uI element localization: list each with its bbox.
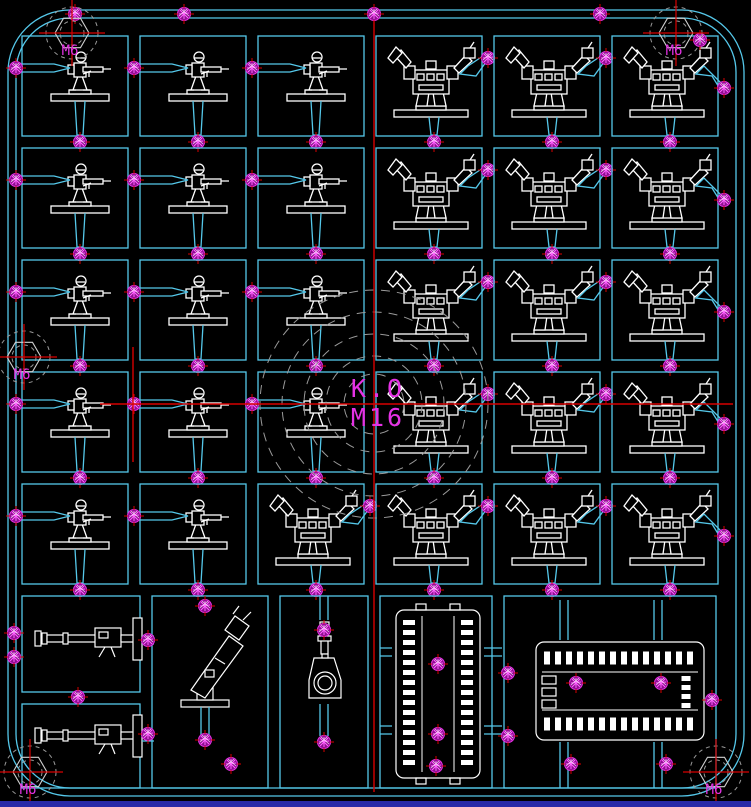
track-v-part bbox=[396, 604, 480, 784]
soldier-figure bbox=[169, 52, 229, 101]
robot-figure bbox=[388, 42, 475, 117]
gate-marker bbox=[360, 496, 380, 516]
sprue-cell-robot bbox=[376, 484, 498, 600]
drop-runner bbox=[75, 213, 85, 247]
drop-runner bbox=[193, 325, 203, 359]
gate-marker bbox=[306, 468, 326, 488]
gate-marker bbox=[542, 356, 562, 376]
gate-marker bbox=[478, 272, 498, 292]
sprue-cell-soldier bbox=[124, 148, 246, 264]
robot-figure bbox=[506, 266, 593, 341]
gate-marker bbox=[6, 282, 26, 302]
soldier-figure bbox=[287, 276, 347, 325]
robot-figure bbox=[624, 490, 711, 565]
gate-marker bbox=[596, 272, 616, 292]
gate-marker bbox=[702, 690, 722, 710]
robot-figure bbox=[388, 266, 475, 341]
soldier-figure bbox=[51, 388, 111, 437]
drop-runner bbox=[193, 549, 203, 583]
gate-marker bbox=[714, 526, 734, 546]
cad-viewport[interactable]: M6M6M6M6M6K.OM16 bbox=[0, 0, 751, 807]
gate-marker bbox=[428, 724, 448, 744]
gate-marker bbox=[188, 356, 208, 376]
gate-marker bbox=[651, 673, 671, 693]
mould-size-text: M16 bbox=[351, 403, 405, 432]
gate-marker bbox=[4, 623, 24, 643]
sprue-cell-soldier bbox=[242, 148, 364, 264]
gate-marker bbox=[124, 282, 144, 302]
gate-marker bbox=[242, 58, 262, 78]
sprue-cell-robot bbox=[376, 36, 498, 152]
sprue-cell-robot bbox=[612, 260, 734, 376]
mould-id-text: K.O bbox=[351, 374, 405, 403]
gate-marker bbox=[6, 394, 26, 414]
drop-runner bbox=[311, 437, 321, 471]
gate-marker bbox=[306, 580, 326, 600]
gate-marker bbox=[498, 663, 518, 683]
soldier-figure bbox=[51, 276, 111, 325]
soldier-figure bbox=[169, 164, 229, 213]
drop-runner bbox=[75, 325, 85, 359]
gate-marker bbox=[70, 356, 90, 376]
track-h-part bbox=[536, 642, 704, 740]
gate-marker bbox=[242, 170, 262, 190]
bolt-hole-label: M6 bbox=[62, 43, 79, 59]
robot-figure bbox=[270, 490, 357, 565]
sprue-cell-robot bbox=[494, 372, 616, 488]
gate-marker bbox=[590, 4, 610, 24]
heavy-gun-part bbox=[35, 715, 142, 757]
gate-marker bbox=[364, 4, 384, 24]
cad-canvas[interactable]: M6M6M6M6M6K.OM16 bbox=[0, 0, 751, 801]
gate-marker bbox=[428, 654, 448, 674]
drop-runner bbox=[311, 101, 321, 135]
sprue-cell-robot bbox=[494, 148, 616, 264]
gate-marker bbox=[596, 384, 616, 404]
gate-marker bbox=[221, 754, 241, 774]
drop-runner bbox=[311, 213, 321, 247]
gate-marker bbox=[174, 4, 194, 24]
soldier-figure bbox=[51, 164, 111, 213]
drop-runner bbox=[75, 101, 85, 135]
gate-marker bbox=[424, 132, 444, 152]
gate-marker bbox=[314, 732, 334, 752]
gate-marker bbox=[424, 468, 444, 488]
gate-marker bbox=[124, 58, 144, 78]
gate-marker bbox=[70, 580, 90, 600]
gate-marker bbox=[596, 48, 616, 68]
sprue-cell-soldier bbox=[242, 372, 364, 488]
sprue-cell-robot bbox=[494, 484, 616, 600]
soldier-figure bbox=[287, 388, 347, 437]
gate-marker bbox=[660, 244, 680, 264]
gate-marker bbox=[424, 244, 444, 264]
sprue-cell-soldier bbox=[242, 260, 364, 376]
gate-marker bbox=[306, 132, 326, 152]
gate-marker bbox=[478, 160, 498, 180]
gate-marker bbox=[660, 468, 680, 488]
gate-marker bbox=[656, 754, 676, 774]
drop-runner bbox=[193, 437, 203, 471]
robot-figure bbox=[506, 490, 593, 565]
robot-figure bbox=[506, 42, 593, 117]
drop-runner bbox=[75, 437, 85, 471]
launcher-part bbox=[181, 606, 251, 707]
gate-marker bbox=[242, 282, 262, 302]
gate-marker bbox=[498, 726, 518, 746]
sprue-cell-soldier bbox=[124, 484, 246, 600]
gate-marker bbox=[478, 48, 498, 68]
sprue-cell-robot bbox=[612, 484, 734, 600]
gate-marker bbox=[542, 468, 562, 488]
gate-marker bbox=[596, 496, 616, 516]
bolt-hole-label: M6 bbox=[706, 782, 723, 798]
robot-figure bbox=[624, 154, 711, 229]
sprue-cell-robot bbox=[612, 372, 734, 488]
gate-marker bbox=[306, 244, 326, 264]
soldier-figure bbox=[169, 388, 229, 437]
window-edge-strip bbox=[0, 801, 751, 807]
gate-marker bbox=[6, 170, 26, 190]
robot-figure bbox=[624, 266, 711, 341]
soldier-figure bbox=[169, 276, 229, 325]
gate-marker bbox=[426, 756, 446, 776]
gate-marker bbox=[188, 468, 208, 488]
robot-figure bbox=[624, 378, 711, 453]
robot-figure bbox=[506, 378, 593, 453]
gate-marker bbox=[124, 170, 144, 190]
sprue-cell-soldier bbox=[6, 484, 128, 600]
bolt-hole-label: M6 bbox=[666, 43, 683, 59]
gate-marker bbox=[4, 647, 24, 667]
gate-marker bbox=[188, 244, 208, 264]
drop-runner bbox=[75, 549, 85, 583]
sprue-cell-robot bbox=[258, 484, 380, 600]
soldier-figure bbox=[169, 500, 229, 549]
gate-marker bbox=[188, 132, 208, 152]
bottom-cell-frame bbox=[22, 704, 140, 788]
gate-marker bbox=[714, 190, 734, 210]
gate-marker bbox=[542, 580, 562, 600]
gate-marker bbox=[660, 132, 680, 152]
sprue-cell-soldier bbox=[124, 260, 246, 376]
gate-marker bbox=[596, 160, 616, 180]
sprue-cell-robot bbox=[612, 148, 734, 264]
bolt-hole-label: M6 bbox=[20, 782, 37, 798]
sprue-cell-soldier bbox=[6, 148, 128, 264]
sprue-cell-robot bbox=[376, 260, 498, 376]
gate-marker bbox=[195, 730, 215, 750]
sprue-cell-robot bbox=[376, 148, 498, 264]
gate-marker bbox=[542, 132, 562, 152]
sprue-cell-robot bbox=[494, 36, 616, 152]
drop-runner bbox=[193, 213, 203, 247]
sprue-cell-soldier bbox=[124, 372, 246, 488]
gate-marker bbox=[660, 580, 680, 600]
sprue-cell-robot bbox=[494, 260, 616, 376]
gate-marker bbox=[70, 468, 90, 488]
gate-marker bbox=[566, 673, 586, 693]
bolt-hole-label: M6 bbox=[14, 367, 31, 383]
heavy-gun-part bbox=[35, 618, 142, 660]
gate-marker bbox=[714, 414, 734, 434]
sprue-cell-soldier bbox=[242, 36, 364, 152]
robot-figure bbox=[506, 154, 593, 229]
gate-marker bbox=[714, 78, 734, 98]
soldier-figure bbox=[287, 52, 347, 101]
gate-marker bbox=[561, 754, 581, 774]
gate-marker bbox=[124, 506, 144, 526]
soldier-figure bbox=[287, 164, 347, 213]
gate-marker bbox=[660, 356, 680, 376]
robot-figure bbox=[388, 154, 475, 229]
gate-marker bbox=[478, 496, 498, 516]
gate-marker bbox=[70, 132, 90, 152]
sprue-cell-soldier bbox=[124, 36, 246, 152]
soldier-figure bbox=[51, 52, 111, 101]
gate-marker bbox=[70, 244, 90, 264]
gate-marker bbox=[542, 244, 562, 264]
gate-marker bbox=[424, 580, 444, 600]
robot-figure bbox=[388, 490, 475, 565]
gate-marker bbox=[6, 506, 26, 526]
drop-runner bbox=[193, 101, 203, 135]
gate-marker bbox=[714, 302, 734, 322]
soldier-figure bbox=[51, 500, 111, 549]
gate-marker bbox=[306, 356, 326, 376]
